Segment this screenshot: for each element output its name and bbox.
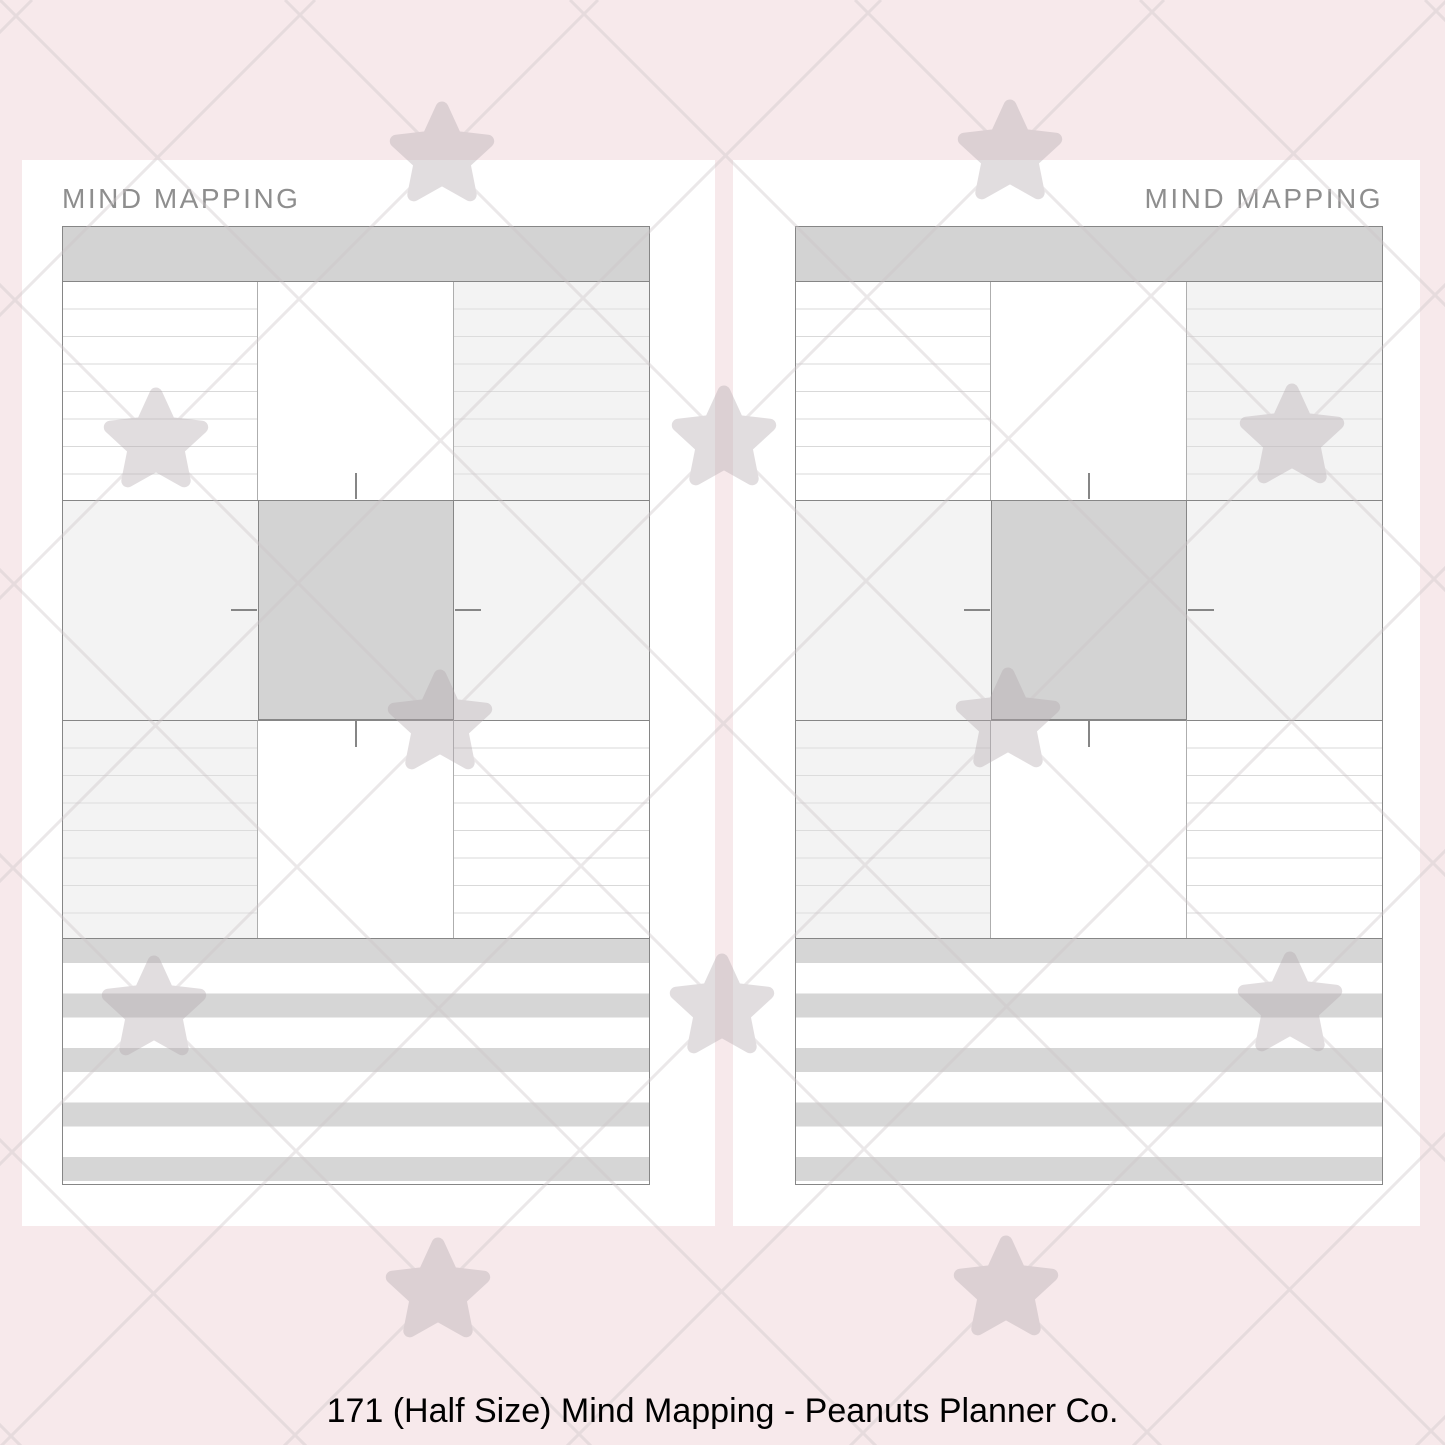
connector-tick-top <box>1088 473 1090 499</box>
page-title-left: MIND MAPPING <box>62 184 300 215</box>
connector-tick-left <box>231 609 257 611</box>
notes-cell-bottom-left <box>63 720 258 938</box>
connector-tick-bottom <box>1088 721 1090 747</box>
star-watermark-icon <box>960 1242 1051 1329</box>
central-topic-box <box>991 500 1186 720</box>
notes-cell-top-left <box>796 282 991 500</box>
branch-cell-middle-right <box>454 500 649 720</box>
notes-cell-bottom-left <box>796 720 991 938</box>
branch-cell-middle-left <box>796 500 991 720</box>
page-title-right: MIND MAPPING <box>1145 184 1383 215</box>
branch-cell-bottom-center <box>258 720 453 938</box>
notes-cell-bottom-right <box>454 720 649 938</box>
connector-tick-left <box>964 609 990 611</box>
notes-cell-top-right <box>454 282 649 500</box>
branch-cell-middle-left <box>63 500 258 720</box>
product-image: MIND MAPPING M <box>0 0 1445 1445</box>
connector-tick-right <box>1188 609 1214 611</box>
mind-map-grid-left <box>62 226 650 1185</box>
mind-map-grid-right <box>795 226 1383 1185</box>
notes-cell-top-left <box>63 282 258 500</box>
striped-notes-section <box>63 938 649 1183</box>
notes-cell-bottom-right <box>1187 720 1382 938</box>
mind-map-cells <box>796 282 1382 938</box>
branch-cell-bottom-center <box>991 720 1186 938</box>
planner-page-left: MIND MAPPING <box>22 160 715 1226</box>
mind-map-cells <box>63 282 649 938</box>
branch-cell-top-center <box>991 282 1186 500</box>
central-topic-box <box>258 500 453 720</box>
planner-page-right: MIND MAPPING <box>733 160 1420 1226</box>
connector-tick-bottom <box>355 721 357 747</box>
connector-tick-right <box>455 609 481 611</box>
star-watermark-icon <box>392 1244 483 1331</box>
caption-text: 171 (Half Size) Mind Mapping - Peanuts P… <box>0 1392 1445 1431</box>
striped-notes-section <box>796 938 1382 1183</box>
header-banner <box>63 227 649 282</box>
header-banner <box>796 227 1382 282</box>
branch-cell-middle-right <box>1187 500 1382 720</box>
notes-cell-top-right <box>1187 282 1382 500</box>
branch-cell-top-center <box>258 282 453 500</box>
connector-tick-top <box>355 473 357 499</box>
